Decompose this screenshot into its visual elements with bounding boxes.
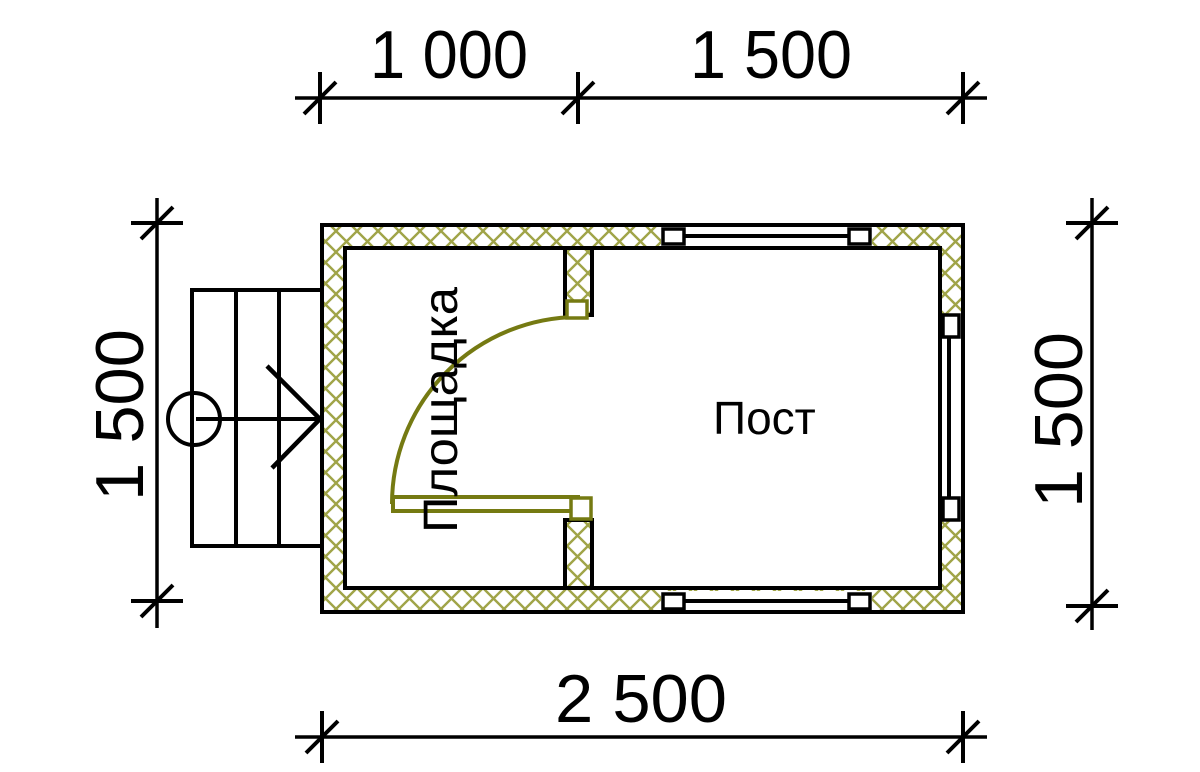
floor-plan-drawing: VANDA <box>0 0 1200 772</box>
window-bottom-left-post <box>663 594 684 609</box>
room-label-post: Пост <box>713 392 816 444</box>
dimension-label-top-left: 1 000 <box>370 17 528 93</box>
dimension-label-bottom: 2 500 <box>555 661 727 737</box>
entrance-steps <box>168 290 322 546</box>
window-bottom-right-post <box>849 594 870 609</box>
window-top-left-post <box>663 229 684 244</box>
floor-plan-canvas: VANDA <box>0 0 1200 772</box>
partition-bottom-stub <box>565 520 592 588</box>
window-top <box>661 227 872 246</box>
dimension-label-left: 1 500 <box>82 329 158 501</box>
door-jamb-bottom <box>571 498 591 519</box>
window-right-top-post <box>943 315 959 337</box>
window-right <box>942 315 961 520</box>
window-right-bottom-post <box>943 498 959 520</box>
window-top-right-post <box>849 229 870 244</box>
window-bottom <box>661 591 872 610</box>
dimension-label-top-right: 1 500 <box>690 17 852 93</box>
window-right-opening <box>942 315 961 520</box>
room-label-platform: Площадка <box>415 287 468 533</box>
dimension-label-right: 1 500 <box>1021 332 1097 508</box>
door-jamb-top <box>567 301 587 318</box>
